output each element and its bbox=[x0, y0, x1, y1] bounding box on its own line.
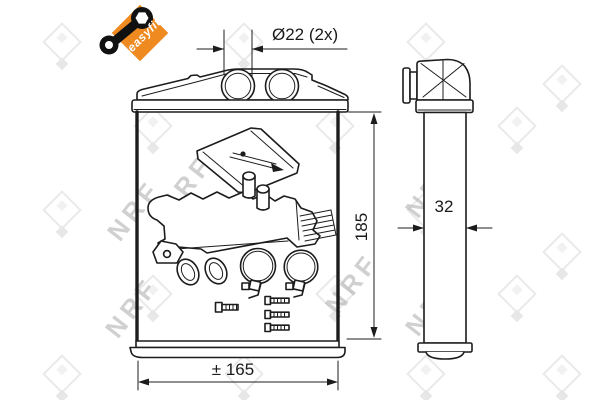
bottom-bar bbox=[136, 341, 339, 348]
front-view bbox=[130, 69, 348, 358]
width-label: ± 165 bbox=[203, 360, 263, 380]
pipe-collar bbox=[416, 100, 473, 113]
bracket-boss-1 bbox=[243, 172, 255, 198]
bolt bbox=[216, 303, 239, 313]
screw-2 bbox=[265, 311, 289, 319]
screw-3 bbox=[265, 324, 289, 332]
depth-label: 32 bbox=[430, 197, 458, 217]
port-right bbox=[266, 70, 299, 103]
easyfit-badge: easyfit bbox=[90, 0, 190, 70]
side-base-lip bbox=[426, 352, 464, 359]
height-label: 185 bbox=[352, 207, 372, 247]
fitting-kit bbox=[173, 249, 318, 332]
header-plate bbox=[132, 100, 348, 112]
product-technical-drawing: NRF NRF NRF NRF NRF NRF bbox=[0, 0, 600, 400]
hose-clamp-2 bbox=[284, 250, 318, 297]
side-base-flange bbox=[418, 343, 472, 352]
base-plate bbox=[130, 348, 345, 358]
inlet-flange-neck bbox=[410, 72, 417, 99]
o-ring-seal-2 bbox=[201, 254, 231, 287]
bracket-boss-2 bbox=[257, 185, 269, 210]
mounting-bracket bbox=[148, 128, 336, 263]
ports-diameter-label: Ø22 (2x) bbox=[272, 25, 338, 45]
port-left bbox=[222, 70, 255, 103]
inlet-flange bbox=[403, 68, 410, 103]
core-side-profile bbox=[424, 113, 466, 344]
hose-clamp-1 bbox=[241, 249, 276, 299]
screw-1 bbox=[265, 297, 289, 305]
bracket-bolt-hole bbox=[164, 251, 171, 258]
